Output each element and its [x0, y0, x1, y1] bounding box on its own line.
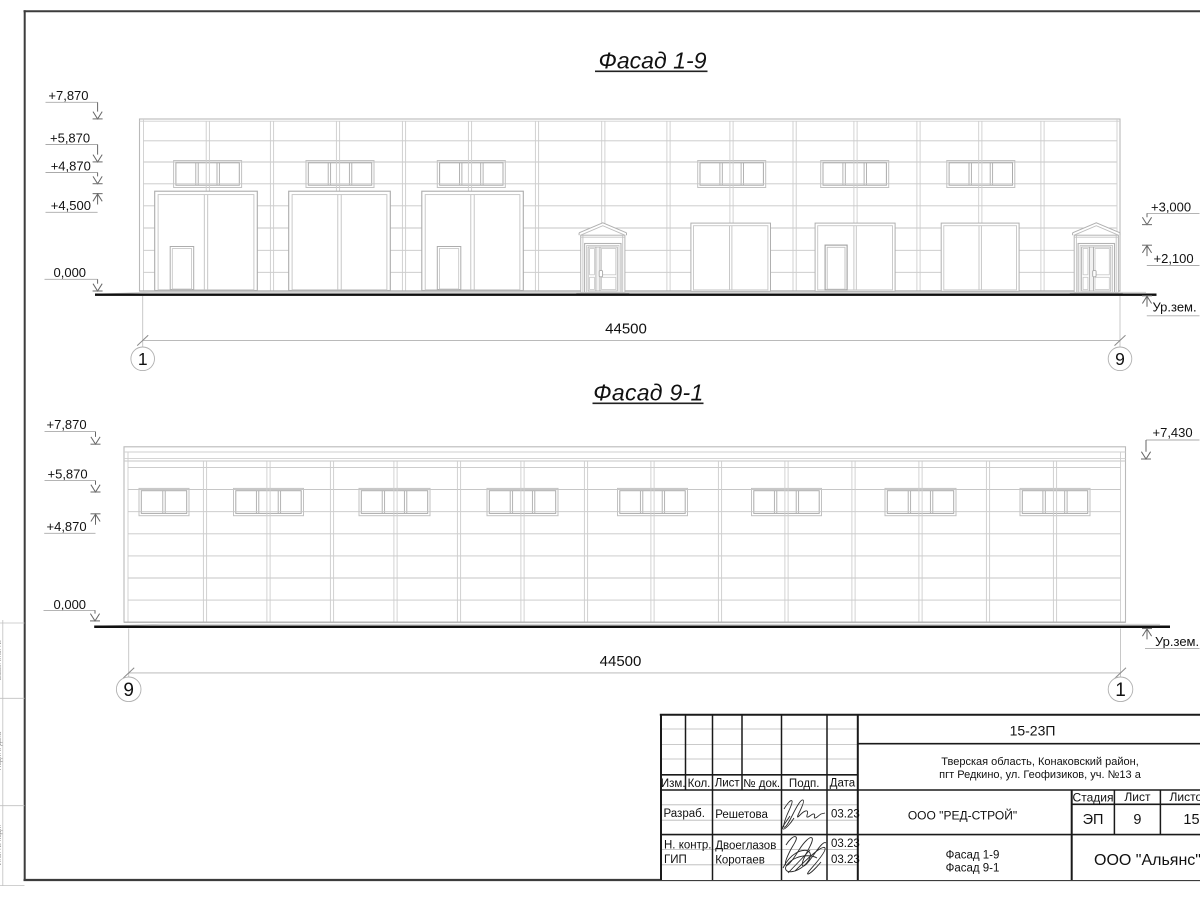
svg-text:Инв. № подл.: Инв. № подл.	[0, 825, 3, 866]
svg-text:0,000: 0,000	[54, 265, 87, 280]
svg-text:ГИП: ГИП	[664, 854, 687, 866]
svg-text:44500: 44500	[605, 320, 647, 337]
svg-text:9: 9	[123, 680, 134, 701]
svg-text:Двоеглазов: Двоеглазов	[715, 840, 776, 852]
svg-text:Разраб.: Разраб.	[664, 808, 705, 820]
svg-text:9: 9	[1133, 812, 1141, 828]
svg-text:Подп. и дата: Подп. и дата	[0, 731, 3, 770]
svg-text:Взам. инв. №: Взам. инв. №	[0, 640, 3, 680]
svg-text:03.23: 03.23	[831, 838, 860, 850]
svg-text:Подп.: Подп.	[789, 778, 820, 790]
svg-text:+7,870: +7,870	[48, 88, 88, 103]
svg-text:+4,870: +4,870	[51, 158, 91, 173]
svg-text:Листов: Листов	[1170, 790, 1200, 804]
svg-text:Ур.зем.: Ур.зем.	[1153, 300, 1197, 315]
svg-text:+7,870: +7,870	[47, 417, 87, 432]
svg-text:15-23П: 15-23П	[1010, 722, 1056, 738]
svg-text:Н. контр.: Н. контр.	[664, 840, 711, 852]
svg-text:Лист: Лист	[1124, 790, 1151, 804]
svg-text:9: 9	[1115, 349, 1125, 369]
svg-text:+5,870: +5,870	[50, 130, 90, 145]
svg-text:0,000: 0,000	[54, 597, 87, 612]
svg-text:+5,870: +5,870	[48, 467, 88, 482]
svg-text:+2,100: +2,100	[1154, 251, 1194, 266]
svg-text:Стадия: Стадия	[1073, 790, 1114, 804]
svg-text:Решетова: Решетова	[715, 809, 768, 821]
svg-text:1: 1	[138, 349, 148, 369]
svg-text:+4,870: +4,870	[47, 519, 87, 534]
svg-text:+3,000: +3,000	[1151, 200, 1191, 215]
svg-text:03.23: 03.23	[831, 854, 860, 866]
svg-text:Фасад 9-1: Фасад 9-1	[946, 863, 1000, 875]
svg-text:+4,500: +4,500	[51, 198, 91, 213]
svg-text:44500: 44500	[600, 653, 642, 670]
svg-text:ООО "Альянс": ООО "Альянс"	[1094, 852, 1200, 869]
svg-text:Кол.: Кол.	[688, 778, 711, 790]
svg-text:ООО "РЕД-СТРОЙ": ООО "РЕД-СТРОЙ"	[908, 808, 1017, 823]
svg-text:+7,430: +7,430	[1153, 425, 1193, 440]
svg-text:ЭП: ЭП	[1083, 812, 1104, 828]
svg-text:Изм.: Изм.	[661, 778, 686, 790]
svg-text:Фасад 1-9: Фасад 1-9	[599, 47, 707, 73]
svg-text:№ док.: № док.	[743, 778, 780, 790]
svg-text:Дата: Дата	[830, 778, 856, 790]
svg-text:пгт Редкино, ул. Геофизиков, у: пгт Редкино, ул. Геофизиков, уч. №13 а	[939, 769, 1142, 781]
svg-text:03.23: 03.23	[831, 809, 860, 821]
svg-text:Фасад 1-9: Фасад 1-9	[946, 850, 1000, 862]
svg-text:Фасад 9-1: Фасад 9-1	[593, 379, 703, 405]
svg-text:15: 15	[1183, 812, 1199, 828]
svg-text:Лист: Лист	[715, 778, 741, 790]
svg-text:Тверская область, Конаковский: Тверская область, Конаковский район,	[941, 756, 1139, 768]
svg-text:Коротаев: Коротаев	[715, 854, 765, 866]
svg-text:Ур.зем.: Ур.зем.	[1155, 634, 1199, 649]
svg-text:1: 1	[1115, 680, 1126, 701]
